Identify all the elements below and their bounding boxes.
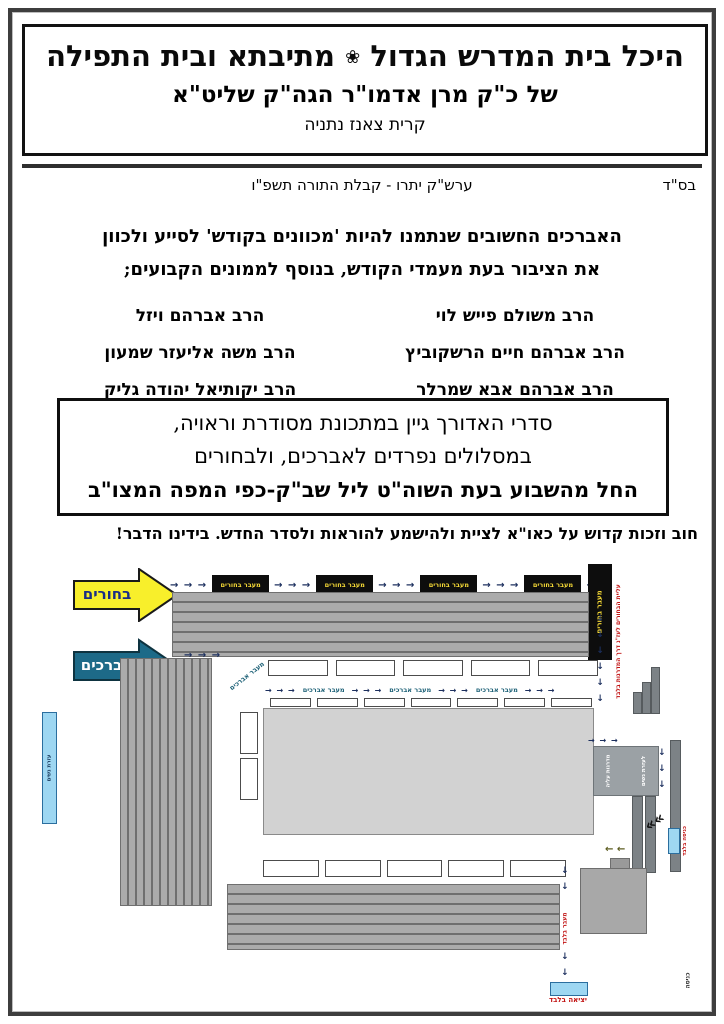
arrow-down-icon: ↓ xyxy=(596,678,604,688)
table xyxy=(403,660,463,676)
exit-door xyxy=(550,982,588,996)
bochurim-arrow-label: בחורים xyxy=(78,585,136,603)
table xyxy=(336,660,396,676)
left-arrows-icon: ← ← xyxy=(605,844,625,855)
arrow-down-icon: ↓ xyxy=(658,748,666,758)
passage-avreichim-label: מעבר אברכים xyxy=(303,686,345,694)
bochurim-route-arrow: בחורים xyxy=(73,568,179,622)
table xyxy=(387,860,443,877)
passage-avreichim-label: מעבר אברכים xyxy=(476,686,518,694)
title-left: מתיבתא ובית התפילה xyxy=(46,39,335,73)
call-line: חוב וזכות קדוש על כאו"א לציית ולהישמע לה… xyxy=(28,524,698,543)
names-column-right: הרב משולם פייש לוי הרב אברהם חיים הרשקוב… xyxy=(350,298,680,409)
route-arrows-icon: → → → xyxy=(184,650,221,661)
table xyxy=(364,698,405,707)
door-blue xyxy=(668,828,680,854)
table xyxy=(263,860,319,877)
benches-bottom xyxy=(227,884,560,950)
intro-paragraph: האברכים החשובים שנתמנו להיות 'מכוונים בק… xyxy=(32,220,692,286)
title-right: היכל בית המדרש הגדול xyxy=(370,39,684,73)
side-table xyxy=(240,758,258,800)
women-section-bar: עזרת נשים xyxy=(42,712,57,824)
stair-step xyxy=(651,667,660,714)
table xyxy=(270,698,311,707)
route-arrows-icon: → → → xyxy=(170,580,207,591)
header-divider xyxy=(22,164,702,168)
down-arrows-column: ↓ ↓ xyxy=(561,866,569,892)
bimah-box xyxy=(580,868,647,934)
table xyxy=(457,698,498,707)
passage-only-note: מעבר בלבד xyxy=(559,906,571,950)
red-note-top: עליית הבחורים לעז"נ דרך המדרגות בלבד xyxy=(612,556,624,726)
names-column-left: הרב אברהם ויזל הרב משה אליעזר שמעון הרב … xyxy=(60,298,340,409)
route-arrows-icon: → → → xyxy=(482,580,519,591)
arrow-down-icon: ↓ xyxy=(596,630,604,640)
table xyxy=(504,698,545,707)
wall-bar xyxy=(632,796,643,873)
poster-sheet: היכל בית המדרש הגדול ❀ מתיבתא ובית התפיל… xyxy=(0,0,724,1024)
notice-line-1: סדרי האדורך גיין במתכונת מסודרת וראויה, xyxy=(60,407,666,440)
side-table xyxy=(240,712,258,754)
table xyxy=(317,698,358,707)
exit-only-label: יציאה בלבד xyxy=(538,996,598,1004)
intro-line-1: האברכים החשובים שנתמנו להיות 'מכוונים בק… xyxy=(32,220,692,253)
table xyxy=(411,698,452,707)
table xyxy=(325,860,381,877)
avreichim-passage-row: → → → מעבר אברכים → → → מעבר אברכים → → … xyxy=(265,684,555,696)
call-line-text: חוב וזכות קדוש על כאו"א לציית ולהישמע לה… xyxy=(215,524,698,543)
notice-line-2: במסלולים נפרדים לאברכים, ולבחורים xyxy=(60,440,666,473)
name-item: הרב אברהם ויזל xyxy=(60,298,340,335)
title-box: היכל בית המדרש הגדול ❀ מתיבתא ובית התפיל… xyxy=(22,24,708,156)
notice-box: סדרי האדורך גיין במתכונת מסודרת וראויה, … xyxy=(57,398,669,516)
tables-row-bottom xyxy=(263,860,566,877)
title-subtitle: של כ"ק מרן אדמו"ר הגה"ק שליט"א xyxy=(25,79,705,111)
table xyxy=(538,660,598,676)
down-arrows-column: ↓ ↓ ↓ xyxy=(658,748,666,790)
arrow-down-icon: ↓ xyxy=(596,646,604,656)
entry-only-note: כניסה בלבד xyxy=(680,824,690,858)
down-arrows-column: ↓ ↓ ↓ ↓ ↓ ↓ xyxy=(593,614,607,704)
title-location: קרית צאנז נתניה xyxy=(25,111,705,139)
main-hall-floor xyxy=(263,708,594,835)
table xyxy=(551,698,592,707)
arrow-down-icon: ↓ xyxy=(561,968,569,978)
name-item: הרב משולם פייש לוי xyxy=(350,298,680,335)
table xyxy=(510,860,566,877)
benches-top xyxy=(172,592,589,657)
call-line-emphasis: בידינו הדבר! xyxy=(116,524,210,543)
arrow-down-icon: ↓ xyxy=(561,882,569,892)
flower-icon: ❀ xyxy=(345,47,360,68)
entrance-label: כניסה xyxy=(682,962,694,998)
stairs-label-2: לעזרת נשים xyxy=(641,756,647,786)
route-arrows-icon: → → → xyxy=(352,686,383,695)
arrow-down-icon: ↓ xyxy=(658,780,666,790)
arrow-down-icon: ↓ xyxy=(561,866,569,876)
route-arrows-icon: → → → xyxy=(525,686,556,695)
stairs-box: מדרגות עליה לעזרת נשים xyxy=(593,746,659,796)
table xyxy=(268,660,328,676)
route-arrows-icon: → → → xyxy=(378,580,415,591)
route-arrows-icon: → → → xyxy=(588,736,619,745)
down-arrows-column: ↓ ↓ xyxy=(561,952,569,978)
date-line: ערש"ק יתרו - קבלת התורה תשפ"ו xyxy=(0,176,724,194)
floor-plan-diagram: בחורים אברכים → → → מעבר בחורים → → → מע… xyxy=(20,556,706,1008)
passage-avreichim-diagonal-label: מעבר אברכים xyxy=(228,660,266,692)
stairs-label-1: מדרגות עליה xyxy=(606,755,612,788)
arrow-down-icon: ↓ xyxy=(596,614,604,624)
benches-left xyxy=(120,658,212,906)
name-item: הרב משה אליעזר שמעון xyxy=(60,335,340,372)
route-arrows-icon: → → → xyxy=(438,686,469,695)
tables-row-narrow xyxy=(270,698,592,707)
arrow-down-icon: ↓ xyxy=(658,764,666,774)
intro-line-2: את הציבור בעת מעמדי הקודש, בנוסף לממונים… xyxy=(32,253,692,286)
tables-row-upper xyxy=(268,660,598,676)
table xyxy=(471,660,531,676)
stair-step xyxy=(633,692,642,714)
route-arrows-icon: → → → xyxy=(274,580,311,591)
route-arrows-icon: → → → xyxy=(265,686,296,695)
passage-avreichim-label: מעבר אברכים xyxy=(389,686,431,694)
notice-line-3: החל מהשבוע בעת השוה"ט ליל שב"ק-כפי המפה … xyxy=(60,473,666,506)
table xyxy=(448,860,504,877)
arrow-down-icon: ↓ xyxy=(596,694,604,704)
name-item: הרב אברהם חיים הרשקוביץ xyxy=(350,335,680,372)
arrow-down-icon: ↓ xyxy=(561,952,569,962)
stair-step xyxy=(642,682,651,714)
page-title: היכל בית המדרש הגדול ❀ מתיבתא ובית התפיל… xyxy=(25,35,705,79)
